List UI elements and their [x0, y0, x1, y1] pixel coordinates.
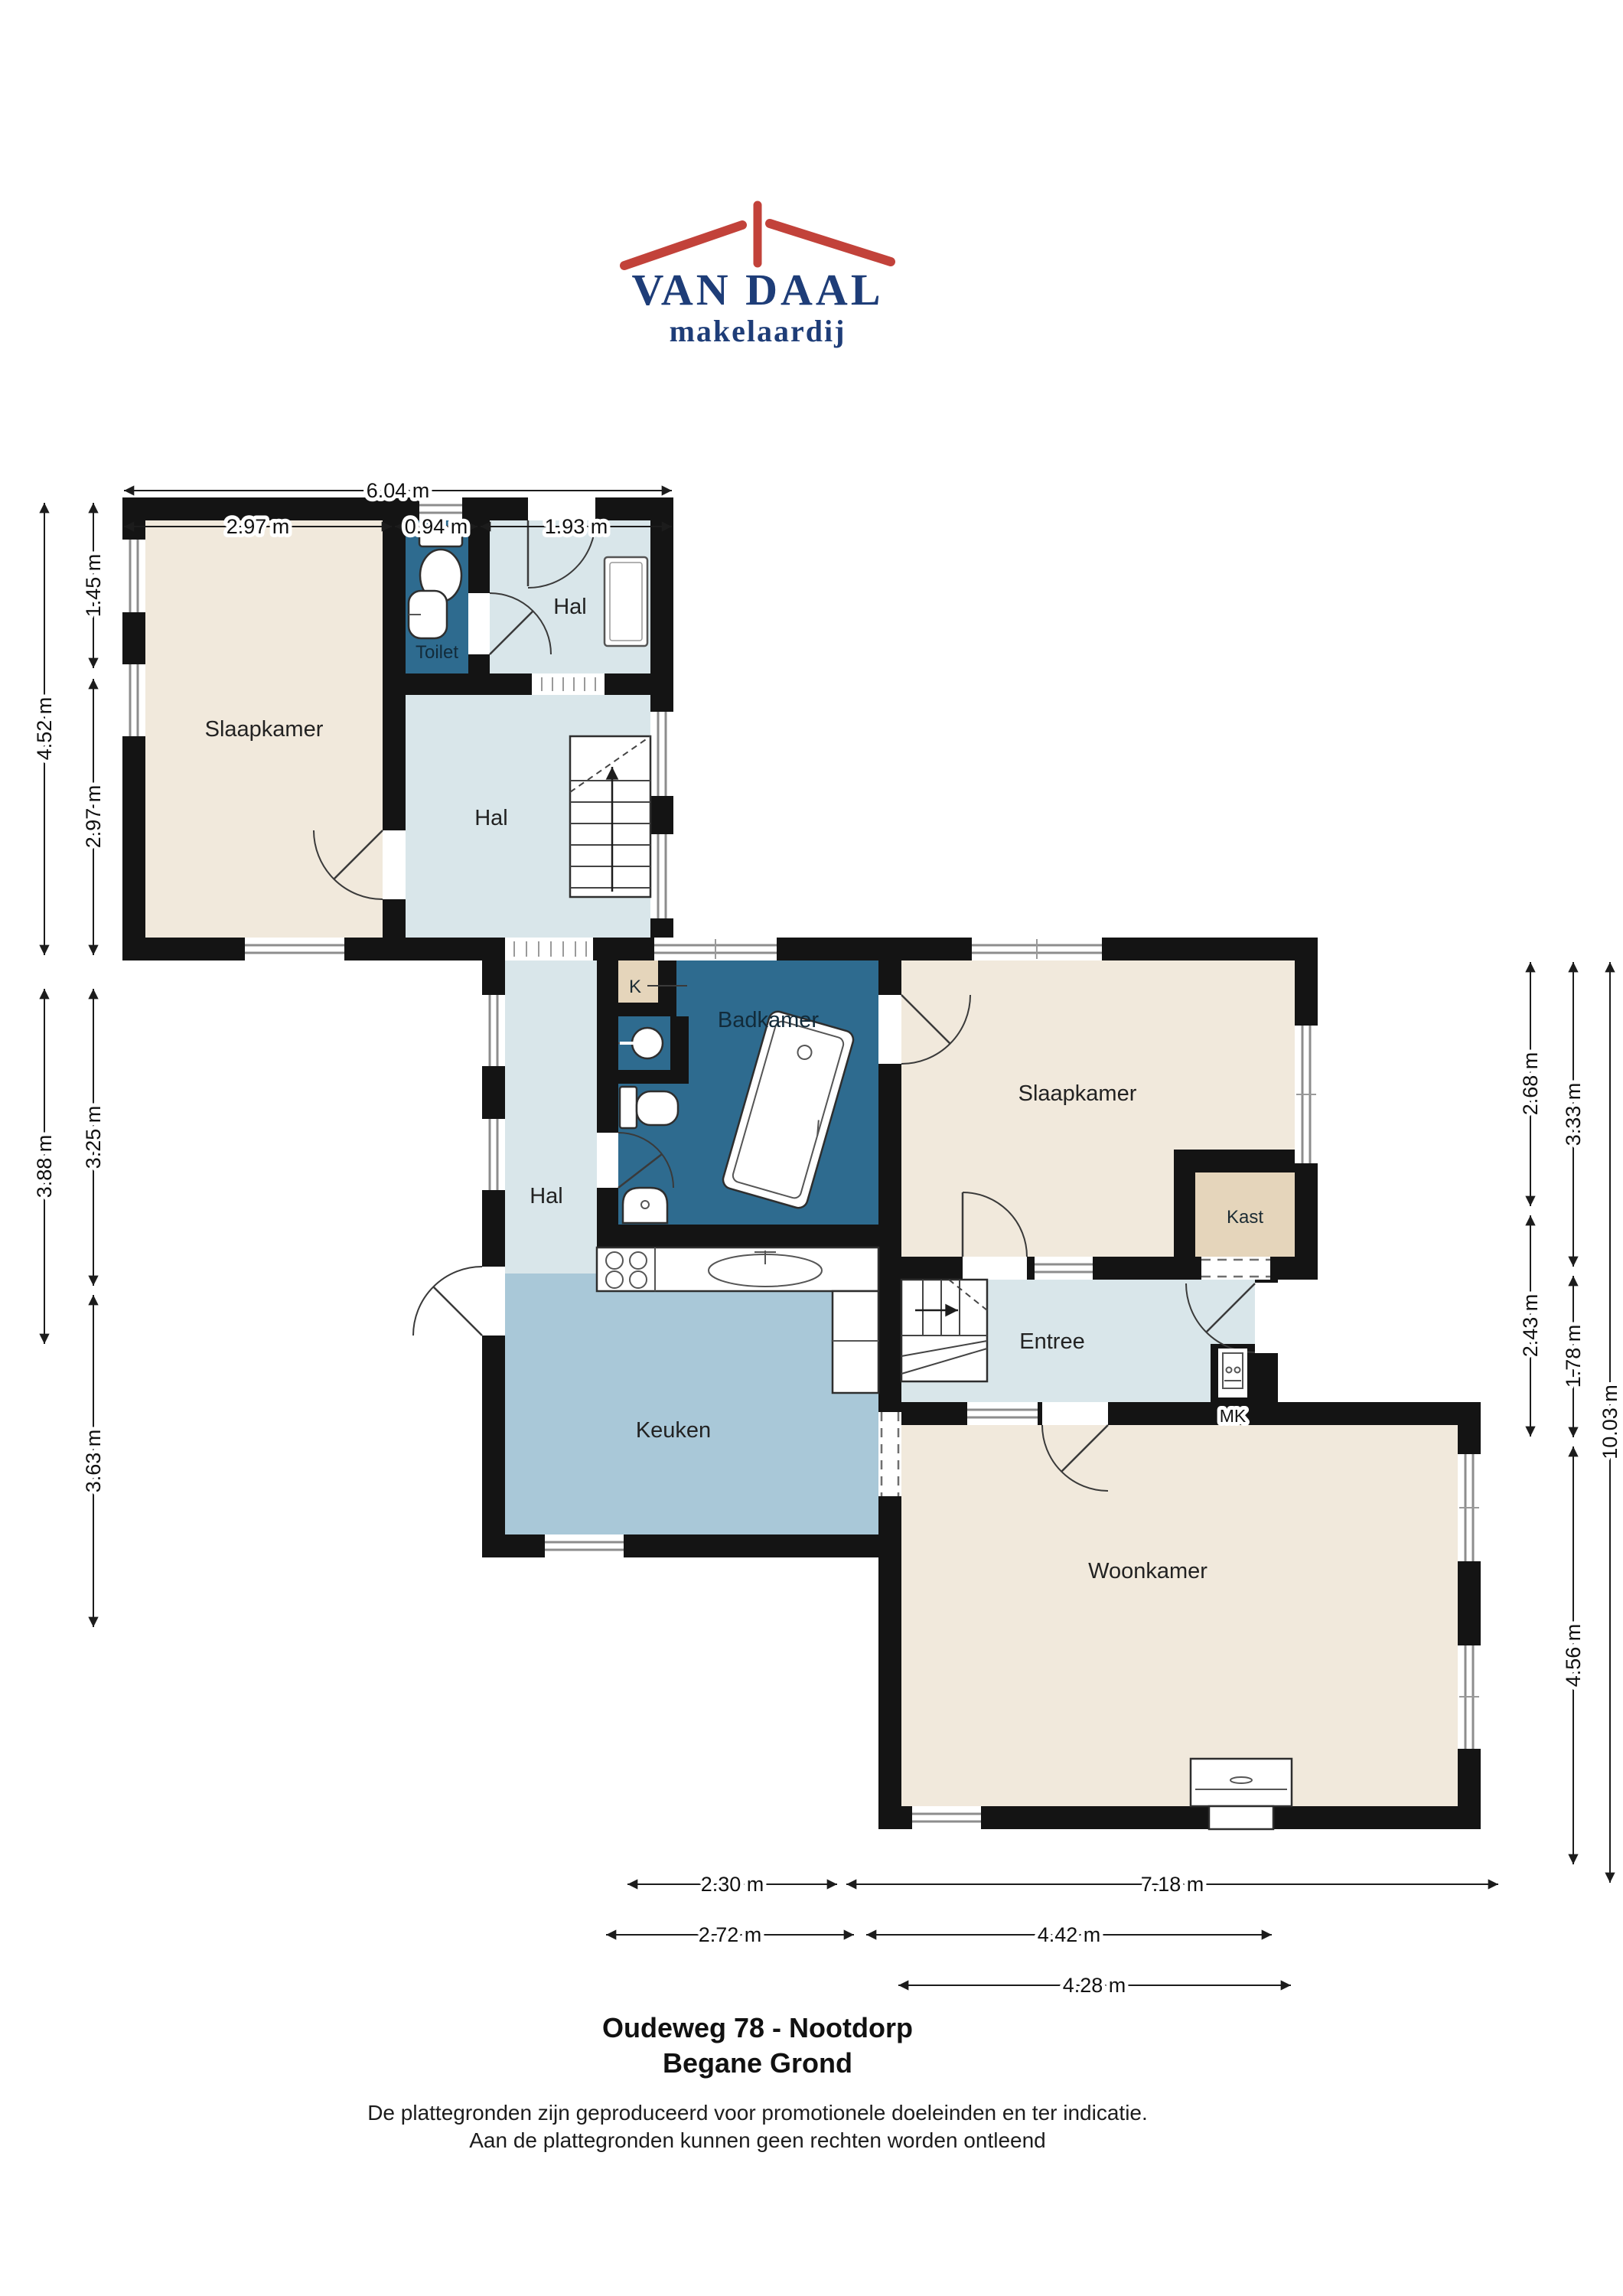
window-icon [1458, 1454, 1481, 1561]
dim-left-outer-seg2: 3.88 m [33, 989, 56, 1344]
svg-text:1.78 m: 1.78 m [1562, 1325, 1585, 1388]
window-icon [1458, 1645, 1481, 1749]
door-keuken-exterior [413, 1267, 505, 1336]
svg-text:3.88 m: 3.88 m [33, 1135, 56, 1199]
window-icon [972, 938, 1102, 960]
window-icon [482, 995, 505, 1066]
toilet-icon [620, 1087, 678, 1128]
dim-left-inner-seg3: 3.25 m [82, 989, 105, 1286]
svg-text:2.30 m: 2.30 m [701, 1873, 764, 1896]
label-woonkamer: Woonkamer [1088, 1559, 1207, 1583]
open-passage-dashed [878, 1412, 901, 1496]
label-keuken: Keuken [636, 1418, 711, 1443]
dim-right-inner-seg2: 2.43 m [1519, 1215, 1542, 1437]
label-badkamer: Badkamer [718, 1008, 820, 1032]
svg-text:1.93 m: 1.93 m [545, 515, 608, 538]
dim-left-inner-seg1: 1.45 m [82, 503, 105, 668]
dim-right-outer-total: 10.03 m [1599, 962, 1621, 1883]
window-icon [650, 834, 673, 918]
svg-text:2.97 m: 2.97 m [227, 515, 290, 538]
svg-text:2.43 m: 2.43 m [1519, 1294, 1542, 1358]
sink-icon [409, 591, 447, 638]
svg-text:2.97 m: 2.97 m [82, 785, 105, 849]
dim-bottom-row1-seg2: 7.18 m [846, 1873, 1498, 1896]
dim-left-inner-seg4: 3.63 m [82, 1295, 105, 1627]
svg-text:1.45 m: 1.45 m [82, 554, 105, 618]
stairs-icon [901, 1280, 987, 1381]
room-hal-corridor [505, 960, 597, 1274]
sliding-door-icon [505, 938, 593, 960]
floorplan-image: VAN DAAL makelaardij [0, 0, 1623, 2296]
handbasin-icon [623, 1188, 667, 1223]
svg-text:4.28 m: 4.28 m [1063, 1974, 1126, 1997]
window-icon [482, 1119, 505, 1190]
dim-right-mid-seg2: 1.78 m [1562, 1276, 1585, 1437]
floor-plan: Slaapkamer Toilet Hal Hal Hal Badkamer K… [33, 479, 1621, 1997]
logo: VAN DAAL makelaardij [624, 205, 891, 348]
dim-left-inner-seg2: 2.97 m [82, 679, 105, 955]
dim-bottom-row2-seg2: 4.42 m [866, 1923, 1272, 1946]
window-icon [912, 1806, 981, 1829]
dim-right-mid-seg3: 4.56 m [1562, 1446, 1585, 1864]
window-icon [1295, 1026, 1318, 1163]
window-icon [122, 664, 145, 736]
dim-bottom-row2-seg1: 2.72 m [606, 1923, 854, 1946]
window-icon [545, 1534, 624, 1557]
svg-text:2.68 m: 2.68 m [1519, 1052, 1542, 1116]
footer-disclaimer-line2: Aan de plattegronden kunnen geen rechten… [469, 2128, 1045, 2152]
svg-text:2.72 m: 2.72 m [699, 1923, 762, 1946]
window-icon [245, 938, 344, 960]
label-closet-k: K [629, 977, 641, 997]
sliding-door-icon [532, 673, 605, 695]
footer-disclaimer-line1: De plattegronden zijn geproduceerd voor … [367, 2101, 1148, 2125]
label-hal-corridor: Hal [530, 1184, 563, 1208]
stairs-icon [570, 736, 650, 897]
svg-text:6.04 m: 6.04 m [367, 479, 430, 502]
window-icon [122, 540, 145, 612]
footer: Oudeweg 78 - Nootdorp Begane Grond De pl… [367, 2012, 1148, 2152]
label-hal-mid: Hal [474, 806, 508, 830]
window-icon [654, 938, 777, 960]
svg-text:3.33 m: 3.33 m [1562, 1083, 1585, 1146]
dim-bottom-row1-seg1: 2.30 m [627, 1873, 837, 1896]
dim-right-mid-seg1: 3.33 m [1562, 962, 1585, 1267]
window-icon [967, 1402, 1038, 1425]
label-slaapkamer-right: Slaapkamer [1018, 1081, 1137, 1106]
dim-left-outer-seg1: 4.52 m [33, 503, 56, 955]
label-kast: Kast [1227, 1207, 1263, 1228]
logo-tagline: makelaardij [670, 314, 846, 348]
roof-icon [624, 205, 891, 266]
svg-text:3.25 m: 3.25 m [82, 1106, 105, 1169]
open-passage-dashed [1201, 1257, 1270, 1280]
dim-right-inner-seg1: 2.68 m [1519, 962, 1542, 1206]
svg-text:7.18 m: 7.18 m [1141, 1873, 1204, 1896]
label-meterkast: MK [1220, 1406, 1247, 1426]
label-hal-top: Hal [553, 595, 587, 619]
room-keuken [505, 1274, 878, 1534]
dim-bottom-row3-seg1: 4.28 m [898, 1974, 1291, 1997]
svg-text:3.63 m: 3.63 m [82, 1430, 105, 1493]
footer-subtitle: Begane Grond [663, 2047, 852, 2079]
window-icon [650, 712, 673, 796]
doormat-icon [605, 557, 647, 646]
label-entree: Entree [1019, 1329, 1084, 1354]
svg-text:4.42 m: 4.42 m [1038, 1923, 1101, 1946]
footer-title: Oudeweg 78 - Nootdorp [602, 2012, 913, 2043]
svg-text:4.56 m: 4.56 m [1562, 1624, 1585, 1688]
room-woonkamer [901, 1425, 1458, 1806]
svg-text:4.52 m: 4.52 m [33, 697, 56, 761]
svg-text:0.94 m: 0.94 m [405, 515, 468, 538]
svg-text:10.03 m: 10.03 m [1599, 1384, 1621, 1459]
label-toilet: Toilet [416, 642, 458, 663]
label-slaapkamer-left: Slaapkamer [205, 717, 324, 742]
window-icon [1035, 1257, 1093, 1280]
logo-name: VAN DAAL [631, 265, 883, 315]
dim-top-seg2: 0.94 m [395, 515, 477, 538]
meter-box-icon [1218, 1349, 1247, 1397]
